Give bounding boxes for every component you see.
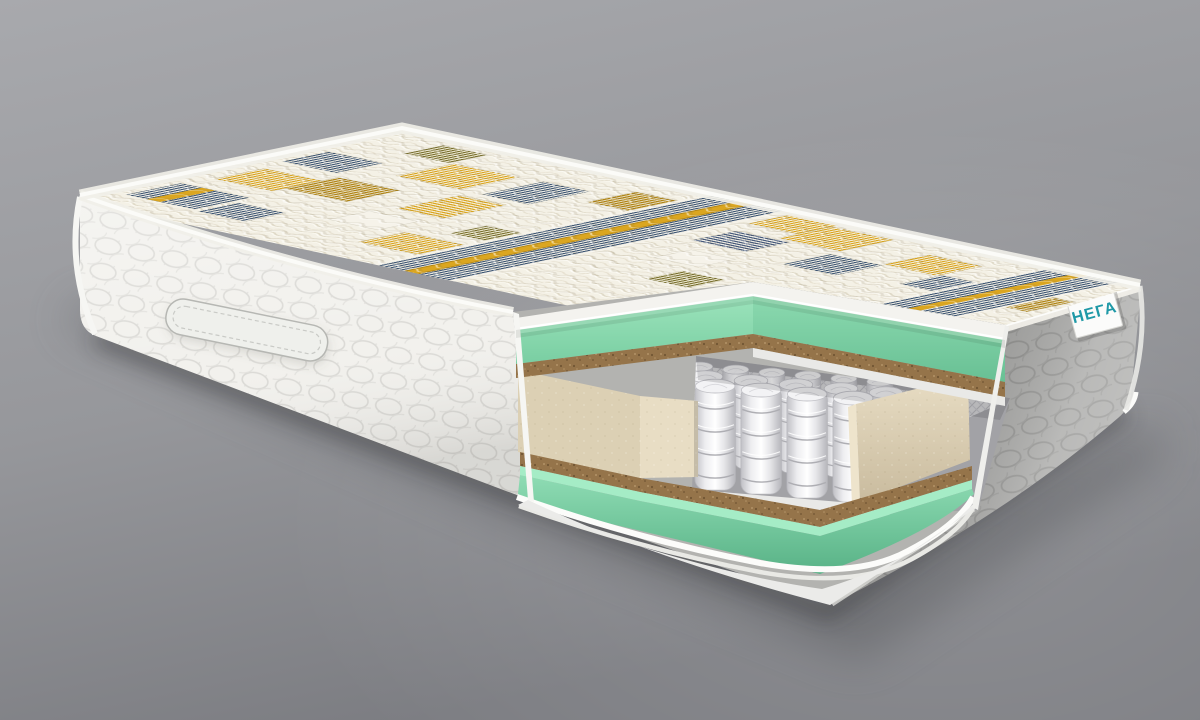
pocket-spring — [695, 379, 735, 490]
mattress-cutaway-render: НЕГА — [0, 0, 1200, 720]
pocket-spring — [787, 387, 827, 498]
pocket-spring — [741, 383, 781, 494]
product-render-stage: НЕГА — [0, 0, 1200, 720]
